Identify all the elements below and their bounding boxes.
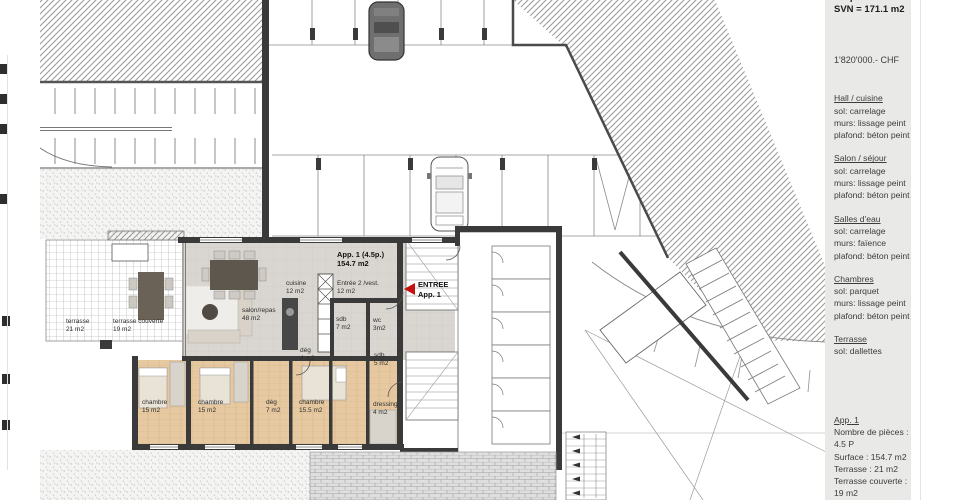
apartment-summary: App. 1 Nombre de pièces : 4.5 P Surface …	[834, 414, 911, 500]
section-marks	[0, 55, 10, 470]
price-line: 1'820'000.- CHF	[834, 54, 911, 66]
entry-marker: ENTREE App. 1	[404, 280, 448, 300]
section-line: murs: lissage peint	[834, 117, 911, 129]
section-line: plafond: béton peint	[834, 189, 911, 201]
section-line: plafond: béton peint	[834, 250, 911, 262]
driveway-ramp	[40, 0, 268, 239]
section-line: sol: carrelage	[834, 165, 911, 177]
sidebar-header: 4.5 pièces SVN = 171.1 m2	[834, 0, 911, 30]
sheet-border-line	[920, 0, 921, 500]
section-line: plafond: béton peint	[834, 310, 911, 322]
car-icon-top	[369, 2, 404, 60]
info-sidebar: 4.5 pièces SVN = 171.1 m2 1'820'000.- CH…	[825, 0, 911, 500]
summary-line: Terrasse couverte : 19 m2	[834, 475, 911, 500]
summary-line: Surface : 154.7 m2	[834, 451, 911, 463]
summary-title: App. 1	[834, 414, 911, 426]
entry-label-line2: App. 1	[418, 290, 448, 300]
svn-top-line: SVN = 171.1 m2	[834, 4, 911, 16]
floorplan-sheet: App. 1 (4.5p.)154.7 m2cuisine12 m2Entrée…	[0, 0, 960, 500]
floorplan-drawing	[0, 0, 960, 500]
section-line: murs: faïence	[834, 237, 911, 249]
section-title: Terrasse	[834, 333, 911, 345]
section-line: sol: carrelage	[834, 225, 911, 237]
terrace	[46, 231, 184, 349]
section-title: Salles d'eau	[834, 213, 911, 225]
section-title: Salon / séjour	[834, 152, 911, 164]
section-salon-sejour: Salon / séjour sol: carrelage murs: liss…	[834, 152, 911, 201]
section-line: sol: carrelage	[834, 105, 911, 117]
exterior-stair-icon	[566, 432, 606, 500]
section-chambres: Chambres sol: parquet murs: lissage pein…	[834, 273, 911, 322]
summary-line: Nombre de pièces : 4.5 P	[834, 426, 911, 451]
section-line: sol: dallettes	[834, 345, 911, 357]
car-icon-bottom	[427, 157, 472, 231]
entry-arrow-icon	[404, 283, 415, 295]
summary-line: Terrasse : 21 m2	[834, 463, 911, 475]
section-line: sol: parquet	[834, 285, 911, 297]
section-terrasse: Terrasse sol: dallettes	[834, 333, 911, 358]
section-salles-eau: Salles d'eau sol: carrelage murs: faïenc…	[834, 213, 911, 262]
section-title: Hall / cuisine	[834, 92, 911, 104]
section-hall-cuisine: Hall / cuisine sol: carrelage murs: liss…	[834, 92, 911, 141]
entry-label-line1: ENTREE	[418, 280, 448, 290]
section-line: murs: lissage peint	[834, 297, 911, 309]
section-line: murs: lissage peint	[834, 177, 911, 189]
section-title: Chambres	[834, 273, 911, 285]
section-line: plafond: béton peint	[834, 129, 911, 141]
